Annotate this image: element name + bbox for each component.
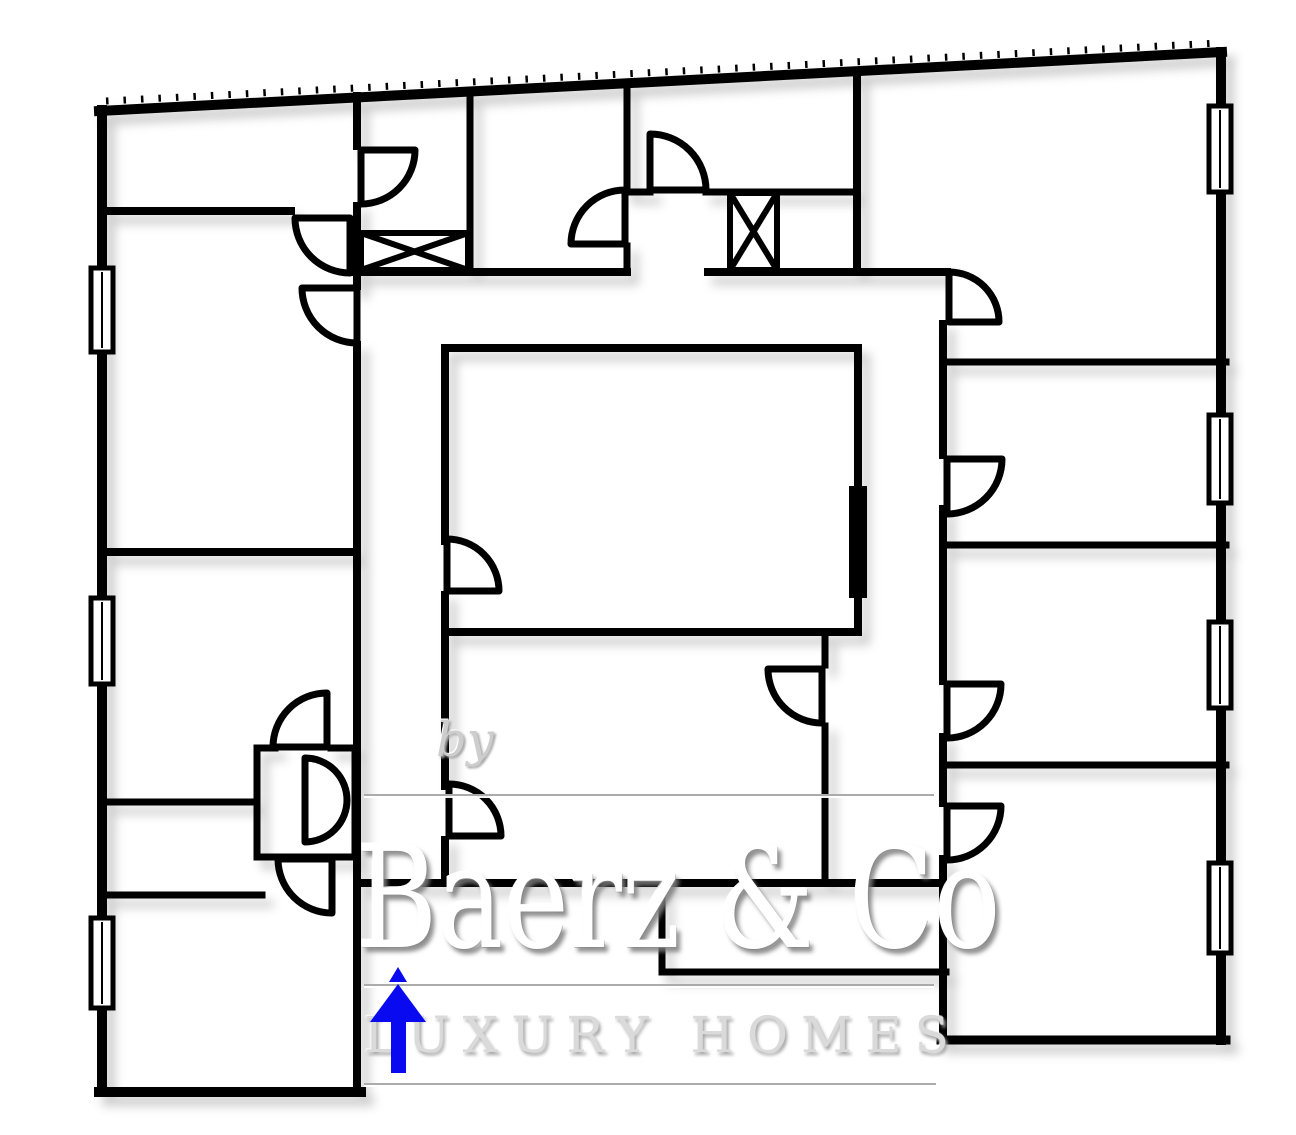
floorplan-canvas: by Baerz & Co LUXURY HOMES — [0, 0, 1296, 1135]
north-arrow — [0, 0, 1296, 1135]
north-arrow-head — [370, 984, 426, 1022]
north-arrow-shaft — [391, 1015, 406, 1073]
north-arrow-tip — [389, 967, 407, 982]
